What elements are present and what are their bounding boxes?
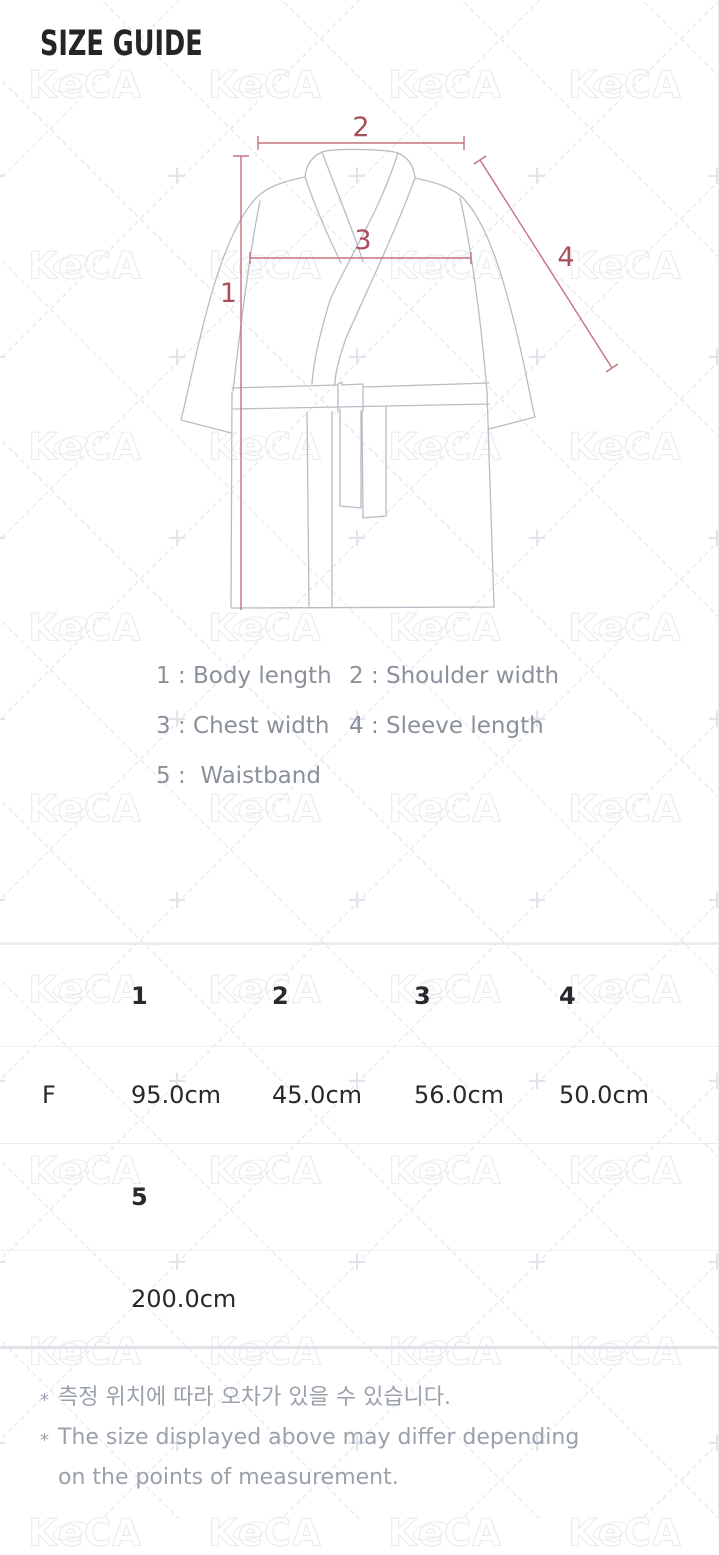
measure-line-4 [474, 156, 618, 372]
orbit-ring-icon [590, 1518, 629, 1544]
size-guide-page: { "page": { "title": "SIZE GUIDE" }, "wa… [0, 0, 719, 1519]
size-value-cell: 200.0cm [131, 1285, 272, 1313]
footnotes: * 측정 위치에 따라 오차가 있을 수 있습니다. * The size di… [40, 1378, 680, 1498]
legend-item-shoulder-width: 2 : Shoulder width [349, 663, 559, 689]
measurement-lines [233, 136, 618, 610]
size-table-header-cell: 1 [131, 982, 272, 1010]
measure-number-3: 3 [354, 225, 371, 256]
legend-item-sleeve-length: 4 : Sleeve length [349, 713, 544, 739]
measure-number-1: 1 [220, 278, 237, 309]
legend-item-waistband: 5 : Waistband [156, 763, 321, 789]
size-table-data-row-1: F 95.0cm 45.0cm 56.0cm 50.0cm [0, 1047, 719, 1144]
orbit-ring-icon [410, 1518, 449, 1544]
orbit-ring-icon [50, 1518, 89, 1544]
robe-measurement-diagram: 1 2 3 4 [0, 0, 719, 670]
size-label-cell: F [0, 1081, 131, 1109]
robe-collar-lines [305, 152, 415, 385]
measure-number-4: 4 [557, 242, 574, 273]
size-table-header-cell: 2 [272, 982, 414, 1010]
size-table-header-row-2: 5 [0, 1144, 719, 1251]
size-table-header-cell: 5 [131, 1183, 272, 1211]
measure-number-2: 2 [352, 112, 369, 143]
size-value-cell: 50.0cm [559, 1081, 719, 1109]
measurement-numbers: 1 2 3 4 [220, 112, 575, 309]
footnote-korean: * 측정 위치에 따라 오차가 있을 수 있습니다. [40, 1378, 680, 1418]
size-table-data-row-2: 200.0cm [0, 1251, 719, 1346]
size-guide-content: SIZE GUIDE 1 2 3 4 1 : Body length 2 : S… [0, 0, 719, 1519]
footnote-line: 측정 위치에 따라 오차가 있을 수 있습니다. [58, 1378, 680, 1418]
size-value-cell: 56.0cm [414, 1081, 559, 1109]
size-table-header-cell: 4 [559, 982, 719, 1010]
legend-item-body-length: 1 : Body length [156, 663, 332, 689]
footnote-line: on the points of measurement. [58, 1458, 680, 1498]
legend-item-chest-width: 3 : Chest width [156, 713, 330, 739]
orbit-ring-icon [230, 1518, 269, 1544]
footnote-english: * The size displayed above may differ de… [40, 1418, 680, 1498]
size-table-header-row-1: 1 2 3 4 [0, 945, 719, 1047]
size-table-header-cell: 3 [414, 982, 559, 1010]
robe-belt-lines [232, 382, 489, 607]
asterisk-marker: * [40, 1421, 49, 1461]
measure-line-1 [233, 156, 249, 610]
size-table: 1 2 3 4 F 95.0cm 45.0cm 56.0cm 50.0cm 5 … [0, 942, 719, 1349]
asterisk-marker: * [40, 1381, 49, 1421]
robe-outline [181, 149, 535, 608]
size-value-cell: 95.0cm [131, 1081, 272, 1109]
size-value-cell: 45.0cm [272, 1081, 414, 1109]
footnote-line: The size displayed above may differ depe… [58, 1418, 680, 1458]
